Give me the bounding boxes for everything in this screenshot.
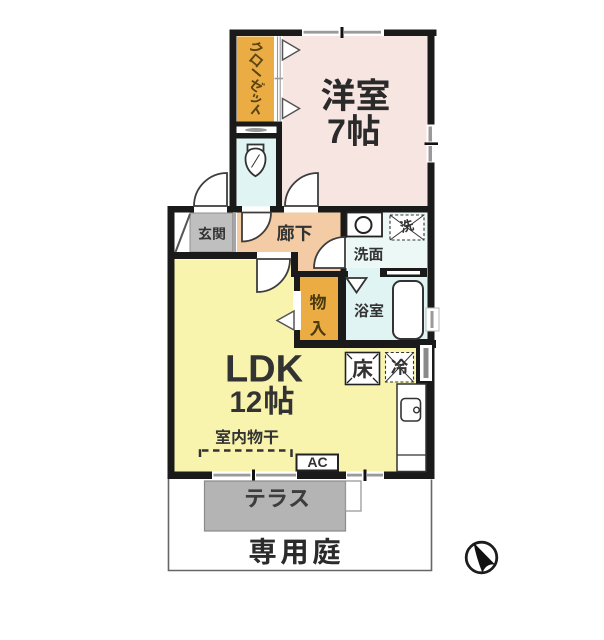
svg-text:AC: AC	[307, 454, 327, 470]
svg-text:LDK: LDK	[225, 349, 304, 391]
svg-text:12: 12	[230, 386, 263, 419]
svg-text:7: 7	[327, 113, 346, 151]
